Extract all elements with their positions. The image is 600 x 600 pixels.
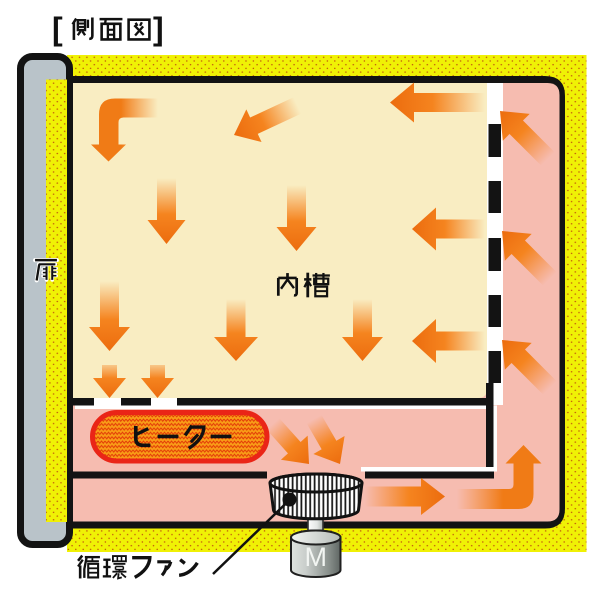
svg-text:]: ] bbox=[153, 11, 164, 47]
svg-text:M: M bbox=[304, 542, 327, 572]
svg-text:[: [ bbox=[52, 11, 63, 47]
